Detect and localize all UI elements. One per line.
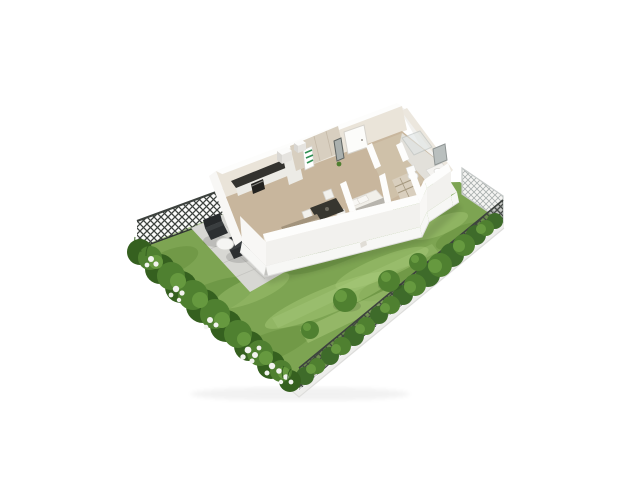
floorplan-3d-scene [0, 0, 640, 480]
terrace-side-table [217, 238, 234, 250]
floorplan-render-canvas [0, 0, 640, 480]
